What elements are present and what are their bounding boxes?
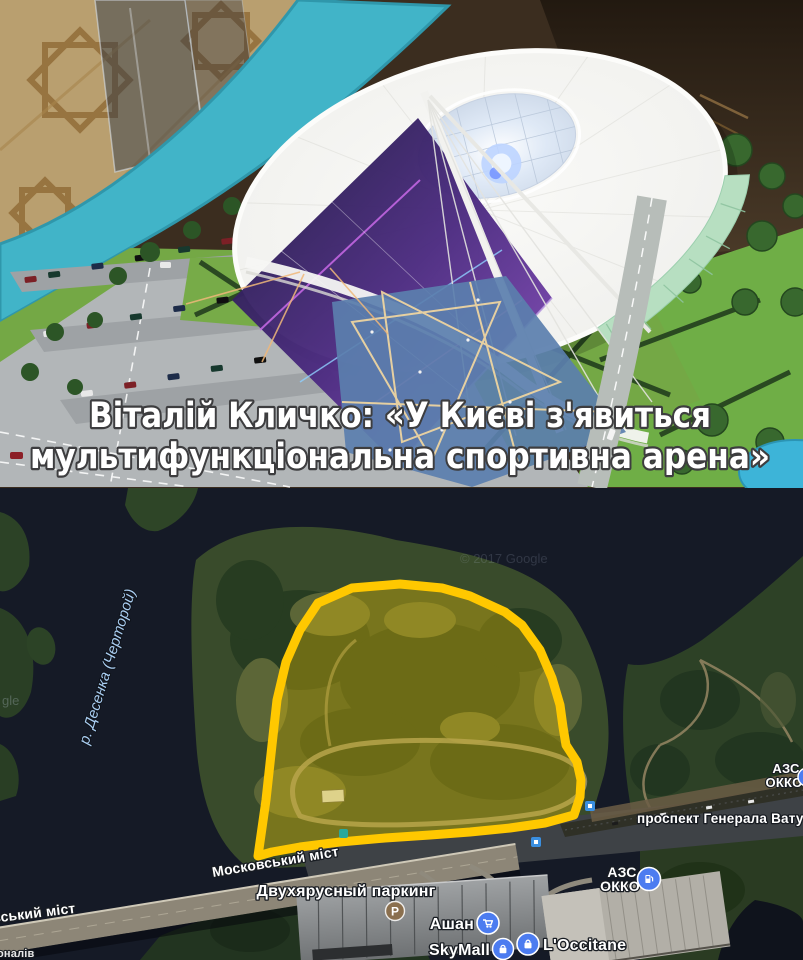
google-copyright: © 2017 Google (460, 551, 548, 566)
caption: Віталій Кличко: «У Києві з'явиться мульт… (30, 396, 770, 477)
google-copyright-partial: gle (2, 693, 19, 708)
fuel-icon[interactable] (638, 868, 661, 891)
svg-text:L'Occitane[interactable]: L'Occitane (543, 937, 626, 954)
poi-ashan[interactable]: Ашан (430, 912, 499, 934)
svg-text:АЗС[interactable]: АЗС (772, 761, 800, 776)
cart-icon[interactable] (477, 912, 499, 934)
parking-label[interactable]: Двухярусный паркинг (256, 883, 435, 900)
bag-icon[interactable] (493, 939, 514, 960)
svg-text:P: P (391, 905, 399, 919)
avenue-label: проспект Генерала Ватуті (637, 811, 803, 826)
satellite-map[interactable]: © 2017 Google gle р. Десенка (Черторой) … (0, 488, 803, 960)
poi-gas-station-2[interactable]: АЗС ОККО (600, 864, 660, 894)
poi-skymall[interactable]: SkyMall (429, 939, 514, 960)
caption-line-1: Віталій Кличко: «У Києві з'явиться (89, 396, 711, 436)
corner-label-partial: оналів (0, 948, 35, 960)
arena-photo-art: Віталій Кличко: «У Києві з'явиться мульт… (0, 0, 803, 488)
transit-icon[interactable] (339, 829, 348, 838)
arena-photo: Віталій Кличко: «У Києві з'явиться мульт… (0, 0, 803, 488)
caption-line-2: мультифункціональна спортивна арена» (30, 437, 770, 477)
satellite-map-art[interactable]: © 2017 Google gle р. Десенка (Черторой) … (0, 488, 803, 960)
svg-text:ОККО[interactable]: ОККО (600, 878, 640, 894)
svg-text:Ашан[interactable]: Ашан (430, 916, 474, 933)
parking-icon[interactable]: P (386, 902, 405, 921)
svg-text:ОККО[interactable]: ОККО (766, 775, 803, 790)
bag-icon[interactable] (517, 933, 539, 955)
svg-text:SkyMall[interactable]: SkyMall (429, 942, 490, 959)
composite-image: Віталій Кличко: «У Києві з'явиться мульт… (0, 0, 803, 960)
poi-loccitane[interactable]: L'Occitane (517, 933, 626, 955)
